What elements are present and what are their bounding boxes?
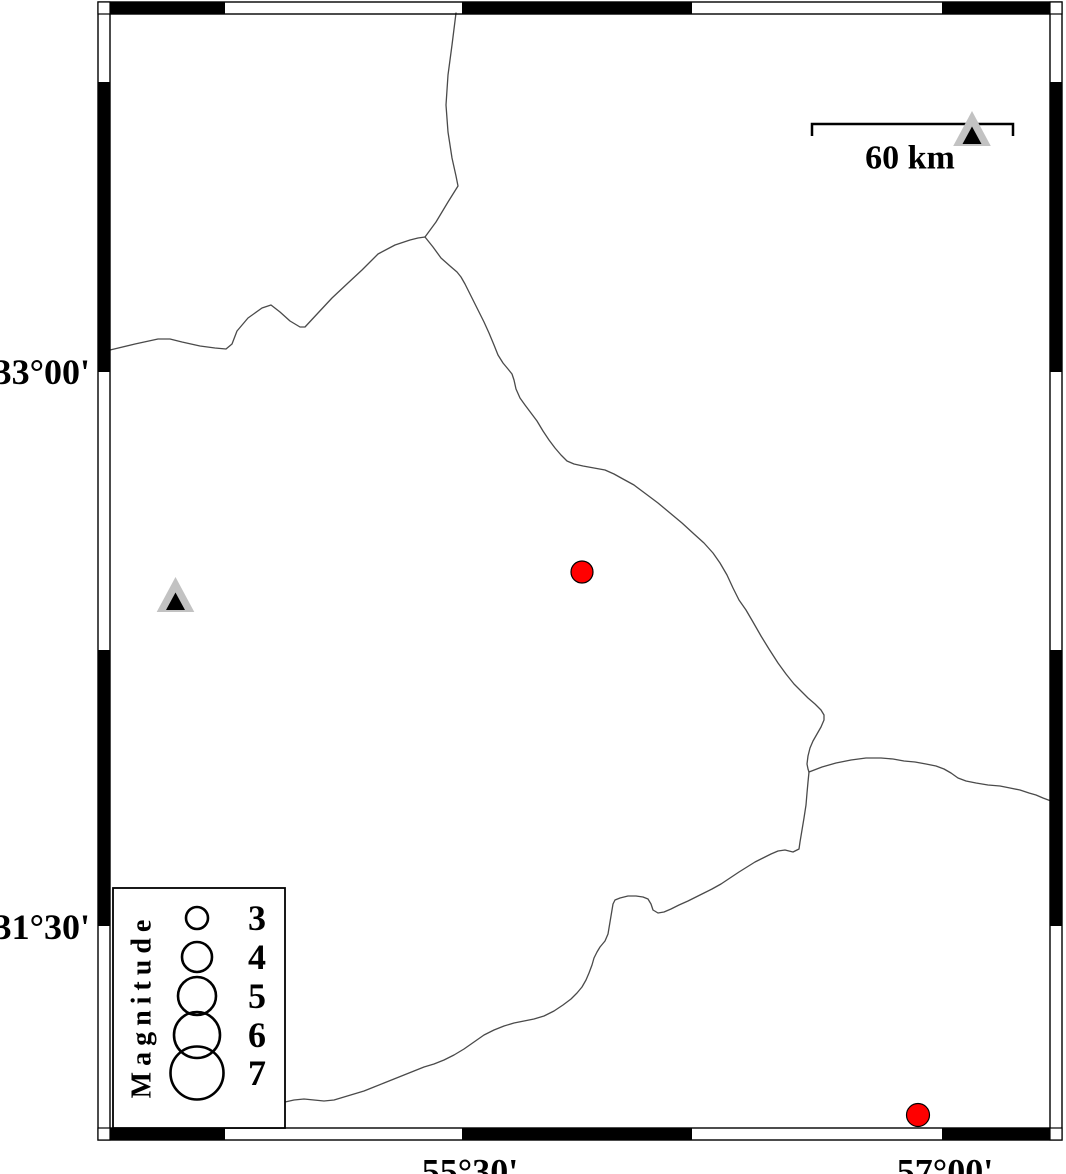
frame-corner [98,2,110,14]
legend-value: 7 [248,1053,266,1093]
frame-segment [98,82,110,372]
legend-value: 3 [248,898,266,938]
legend-value: 5 [248,976,266,1016]
frame-segment [98,650,110,926]
legend-value: 6 [248,1015,266,1055]
frame-segment [225,1128,462,1140]
legend-title: Magnitude [127,914,158,1099]
lat-label: 33°00' [0,352,90,392]
frame-segment [692,1128,942,1140]
lat-label: 31°30' [0,907,90,947]
legend-value: 4 [248,937,266,977]
frame-corner [98,1128,110,1140]
magnitude-legend: Magnitude 3 4 5 6 7 [113,888,285,1128]
seismicity-map: 60 km [0,0,1066,1174]
frame-segment [1050,82,1062,372]
frame-segment [1050,650,1062,926]
map-canvas: 60 km [0,0,1066,1174]
frame-corner [1050,1128,1062,1140]
scale-bar-label: 60 km [865,140,955,177]
earthquake-marker [907,1104,930,1127]
frame-segment [110,1128,225,1140]
frame-segment [110,2,225,14]
frame-segment [942,2,1050,14]
earthquake-marker [571,561,593,583]
frame-corner [1050,2,1062,14]
frame-segment [462,1128,692,1140]
lon-label: 57°00' [897,1152,993,1174]
frame-segment [942,1128,1050,1140]
frame-segment [462,2,692,14]
lon-label: 55°30' [422,1152,518,1174]
